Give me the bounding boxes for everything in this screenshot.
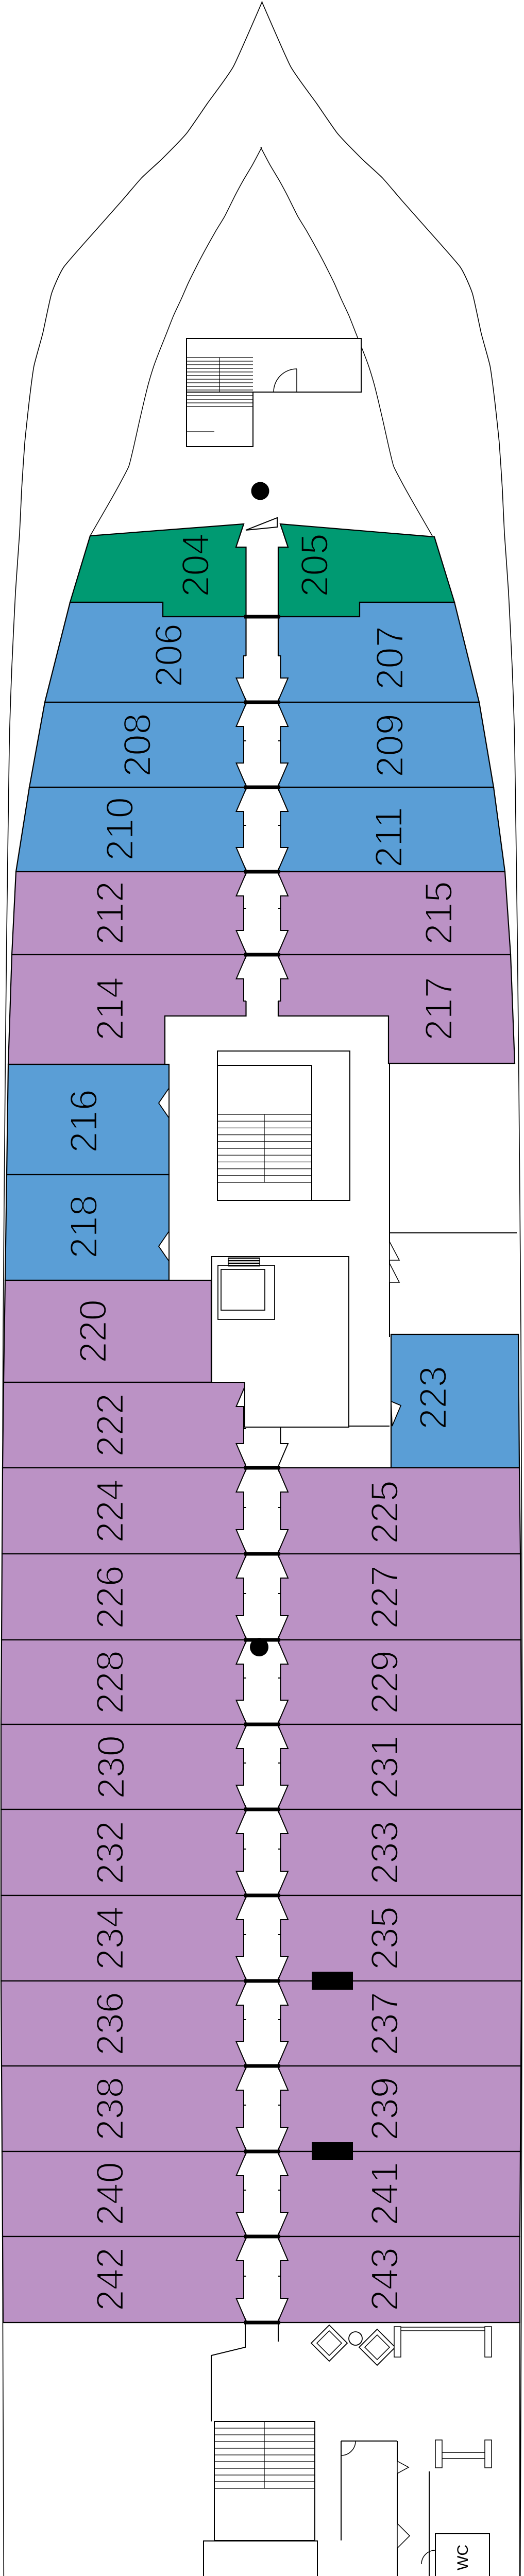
svg-text:212: 212 [89,881,131,944]
svg-text:224: 224 [89,1479,131,1543]
svg-text:206: 206 [147,623,190,687]
svg-text:235: 235 [363,1906,406,1970]
svg-text:238: 238 [89,2077,131,2140]
svg-text:223: 223 [412,1366,454,1429]
svg-text:210: 210 [98,797,141,860]
svg-text:217: 217 [417,977,460,1040]
svg-text:239: 239 [363,2077,406,2140]
svg-text:215: 215 [417,881,460,944]
svg-text:241: 241 [363,2162,406,2225]
svg-text:230: 230 [90,1735,132,1799]
svg-text:220: 220 [72,1299,114,1363]
svg-text:236: 236 [89,1992,131,2055]
svg-text:222: 222 [89,1393,131,1456]
svg-text:WC: WC [454,2545,471,2570]
svg-text:214: 214 [89,977,131,1040]
svg-text:208: 208 [116,713,159,776]
svg-text:225: 225 [363,1480,406,1544]
svg-text:240: 240 [89,2162,131,2225]
svg-text:243: 243 [363,2247,406,2311]
svg-text:229: 229 [363,1650,406,1714]
svg-text:231: 231 [363,1735,406,1799]
svg-text:209: 209 [368,714,411,777]
svg-text:237: 237 [363,1992,406,2055]
svg-text:242: 242 [89,2247,131,2311]
svg-text:207: 207 [368,626,411,689]
svg-text:218: 218 [62,1195,105,1258]
svg-text:232: 232 [89,1821,131,1884]
svg-text:226: 226 [89,1565,131,1629]
svg-text:204: 204 [174,533,217,597]
svg-text:216: 216 [62,1089,105,1153]
svg-text:233: 233 [363,1821,406,1884]
svg-text:205: 205 [293,533,336,597]
svg-text:211: 211 [367,807,410,868]
svg-text:234: 234 [89,1906,131,1970]
svg-text:227: 227 [363,1565,406,1629]
svg-text:228: 228 [89,1650,131,1714]
